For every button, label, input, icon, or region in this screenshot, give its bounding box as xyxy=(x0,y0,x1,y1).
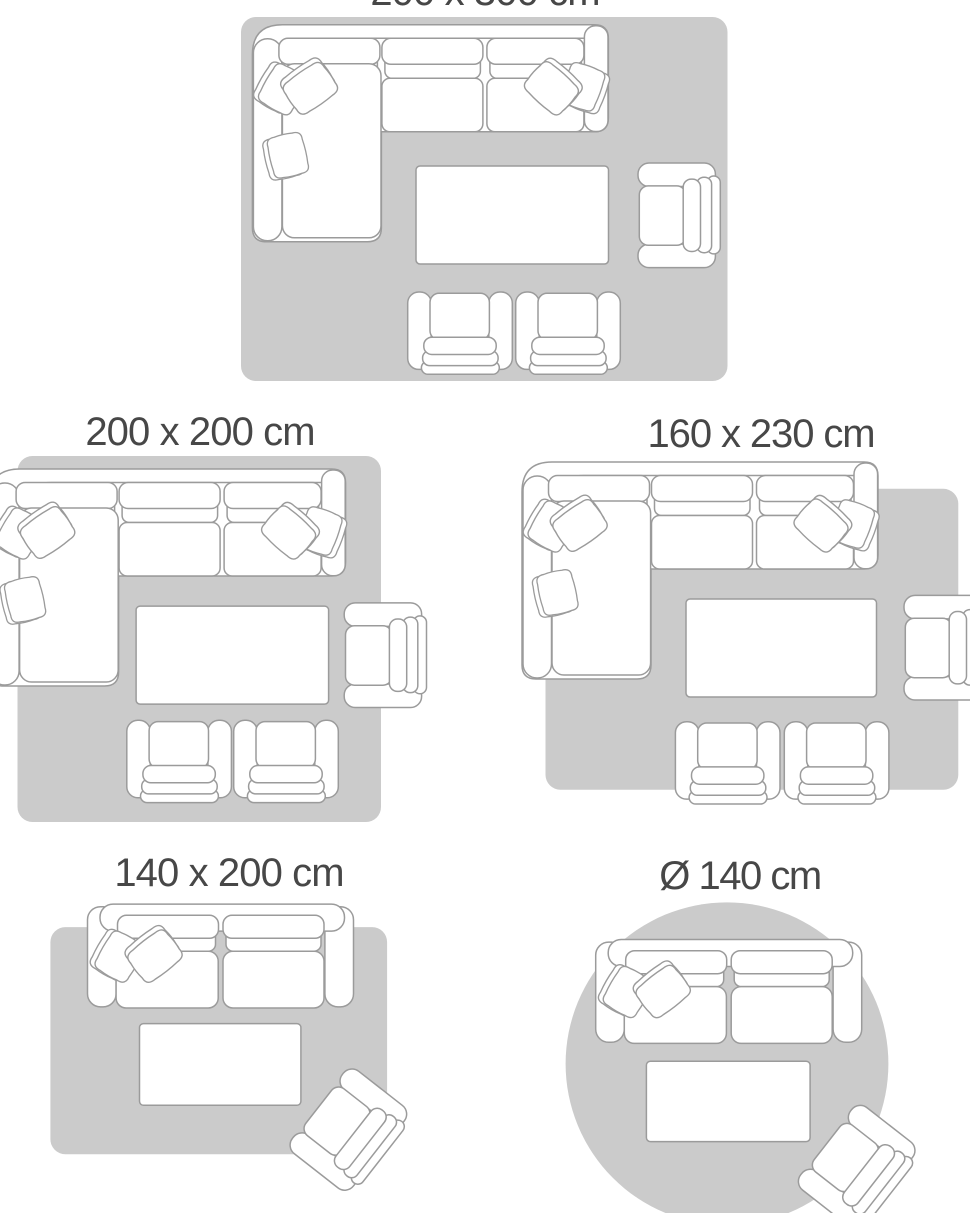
svg-text:200 x 200 cm: 200 x 200 cm xyxy=(85,410,314,454)
svg-text:Ø 140 cm: Ø 140 cm xyxy=(659,854,820,898)
svg-text:200 x 300 cm: 200 x 300 cm xyxy=(370,0,599,14)
svg-text:160 x 230 cm: 160 x 230 cm xyxy=(648,412,875,456)
svg-text:140 x 200 cm: 140 x 200 cm xyxy=(114,851,343,895)
